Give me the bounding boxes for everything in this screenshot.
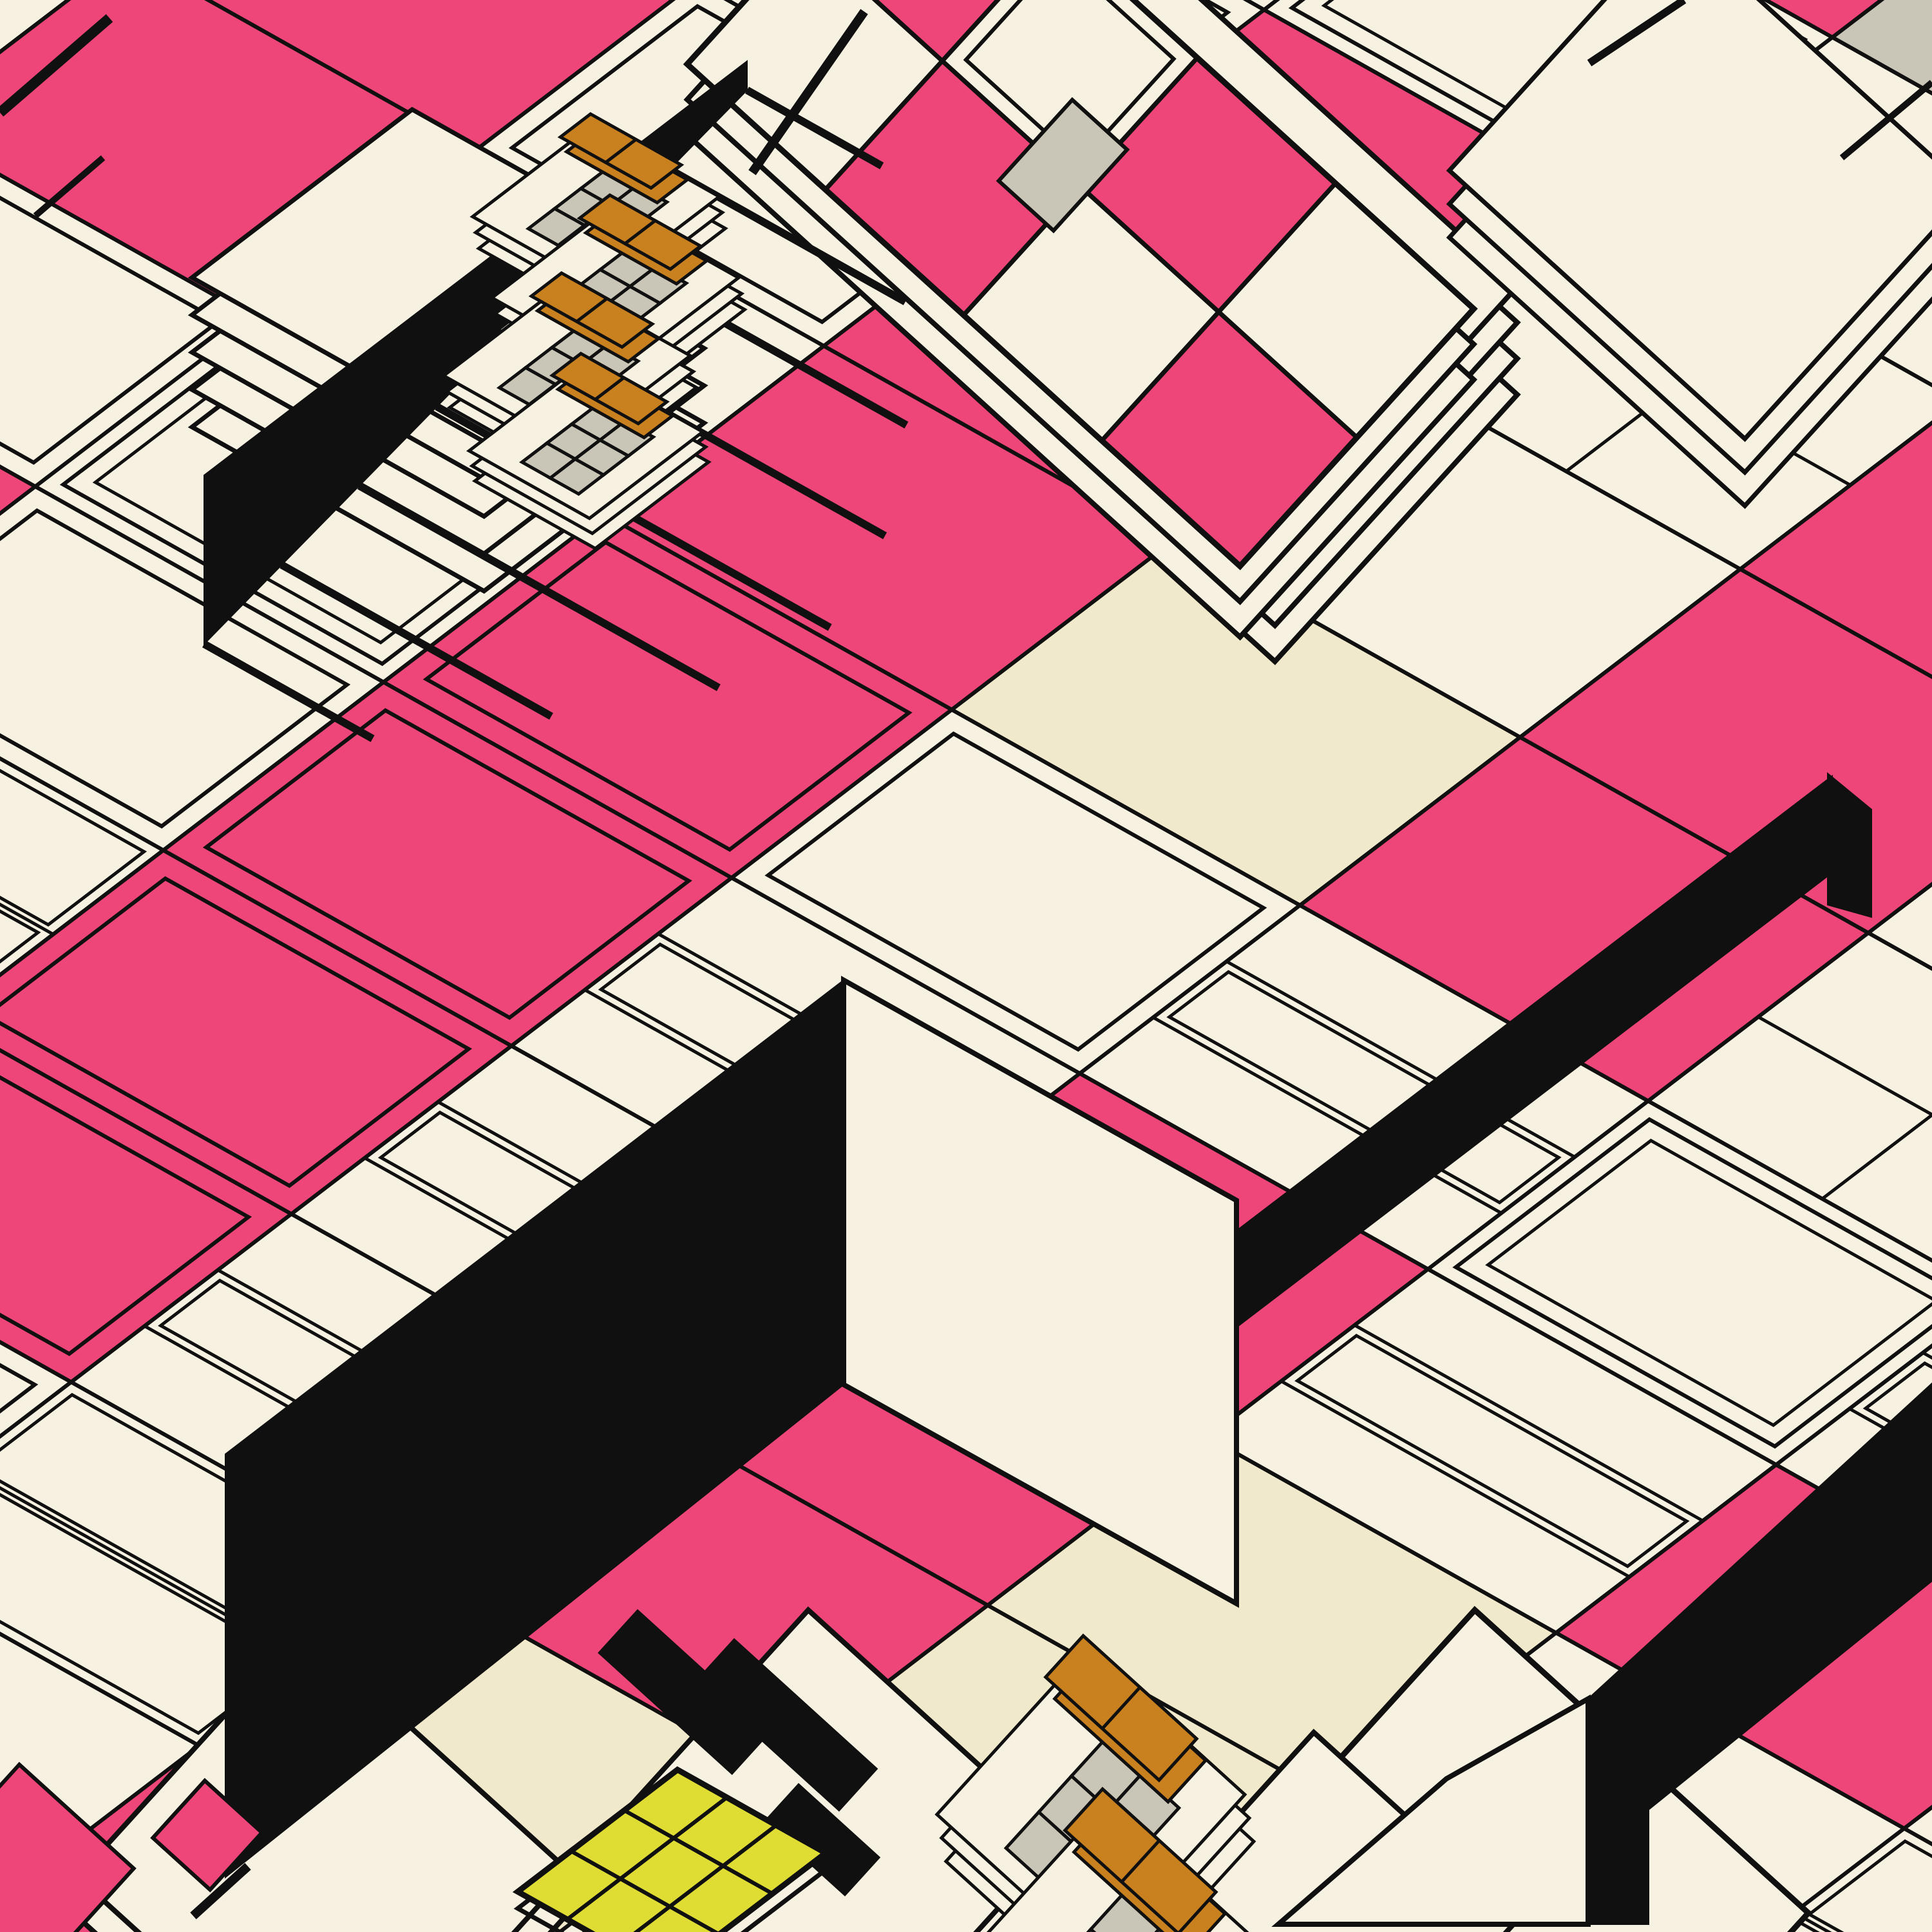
generative-artwork bbox=[0, 0, 1932, 1932]
artwork-canvas bbox=[0, 0, 1932, 1932]
